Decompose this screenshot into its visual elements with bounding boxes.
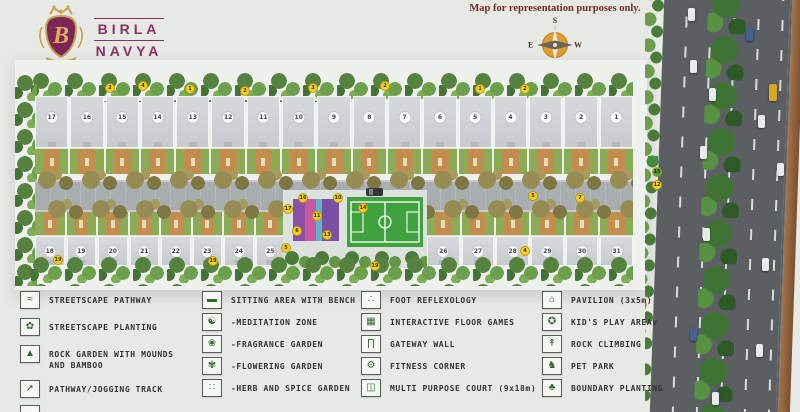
amenity-marker: 2	[520, 84, 530, 94]
amenity-marker: 2	[240, 86, 250, 96]
amenity-marker: 1	[185, 84, 195, 94]
marker-number: 1	[188, 86, 191, 92]
marker-number: 19	[55, 257, 62, 263]
site-map-screenshot: B BIRLA NAVYA GURGRAM Map for representa…	[0, 0, 800, 412]
amenity-marker: 4	[520, 246, 530, 256]
marker-number: 11	[314, 213, 321, 219]
amenity-markers-layer: 2 4 1 2 3 2 1 2 16 17 6 5 11 13 10	[0, 0, 800, 412]
marker-number: 3	[311, 85, 314, 91]
marker-number: 12	[654, 182, 661, 188]
marker-number: 2	[523, 86, 526, 92]
amenity-marker: 14	[358, 203, 368, 213]
marker-number: 2	[383, 83, 386, 89]
marker-number: 1	[478, 86, 481, 92]
amenity-marker: 4	[138, 81, 148, 91]
amenity-marker: 17	[283, 204, 293, 214]
amenity-marker: 5	[528, 191, 538, 201]
amenity-marker: 2	[105, 83, 115, 93]
amenity-marker: 6	[292, 226, 302, 236]
marker-number: 7	[578, 195, 581, 201]
marker-number: 15	[654, 169, 661, 175]
amenity-marker: 16	[298, 193, 308, 203]
amenity-marker: 10	[333, 193, 343, 203]
amenity-marker: 7	[575, 193, 585, 203]
amenity-marker: 1	[475, 84, 485, 94]
amenity-marker: 5	[281, 243, 291, 253]
marker-number: 17	[285, 206, 292, 212]
marker-number: 5	[531, 193, 534, 199]
marker-number: 5	[284, 245, 287, 251]
amenity-marker: 19	[370, 261, 380, 271]
marker-number: 19	[210, 258, 217, 264]
marker-number: 14	[360, 205, 367, 211]
marker-number: 2	[108, 85, 111, 91]
marker-number: 4	[523, 248, 526, 254]
amenity-marker: 19	[208, 256, 218, 266]
marker-number: 6	[295, 228, 298, 234]
amenity-marker: 19	[53, 255, 63, 265]
marker-number: 16	[300, 195, 307, 201]
marker-number: 2	[243, 88, 246, 94]
marker-number: 4	[141, 83, 144, 89]
amenity-marker: 15	[652, 167, 662, 177]
amenity-marker: 13	[322, 230, 332, 240]
marker-number: 19	[372, 263, 379, 269]
amenity-marker: 2	[380, 81, 390, 91]
amenity-marker: 11	[312, 211, 322, 221]
amenity-marker: 12	[652, 180, 662, 190]
amenity-marker: 3	[308, 83, 318, 93]
marker-number: 13	[324, 232, 331, 238]
marker-number: 10	[335, 195, 342, 201]
